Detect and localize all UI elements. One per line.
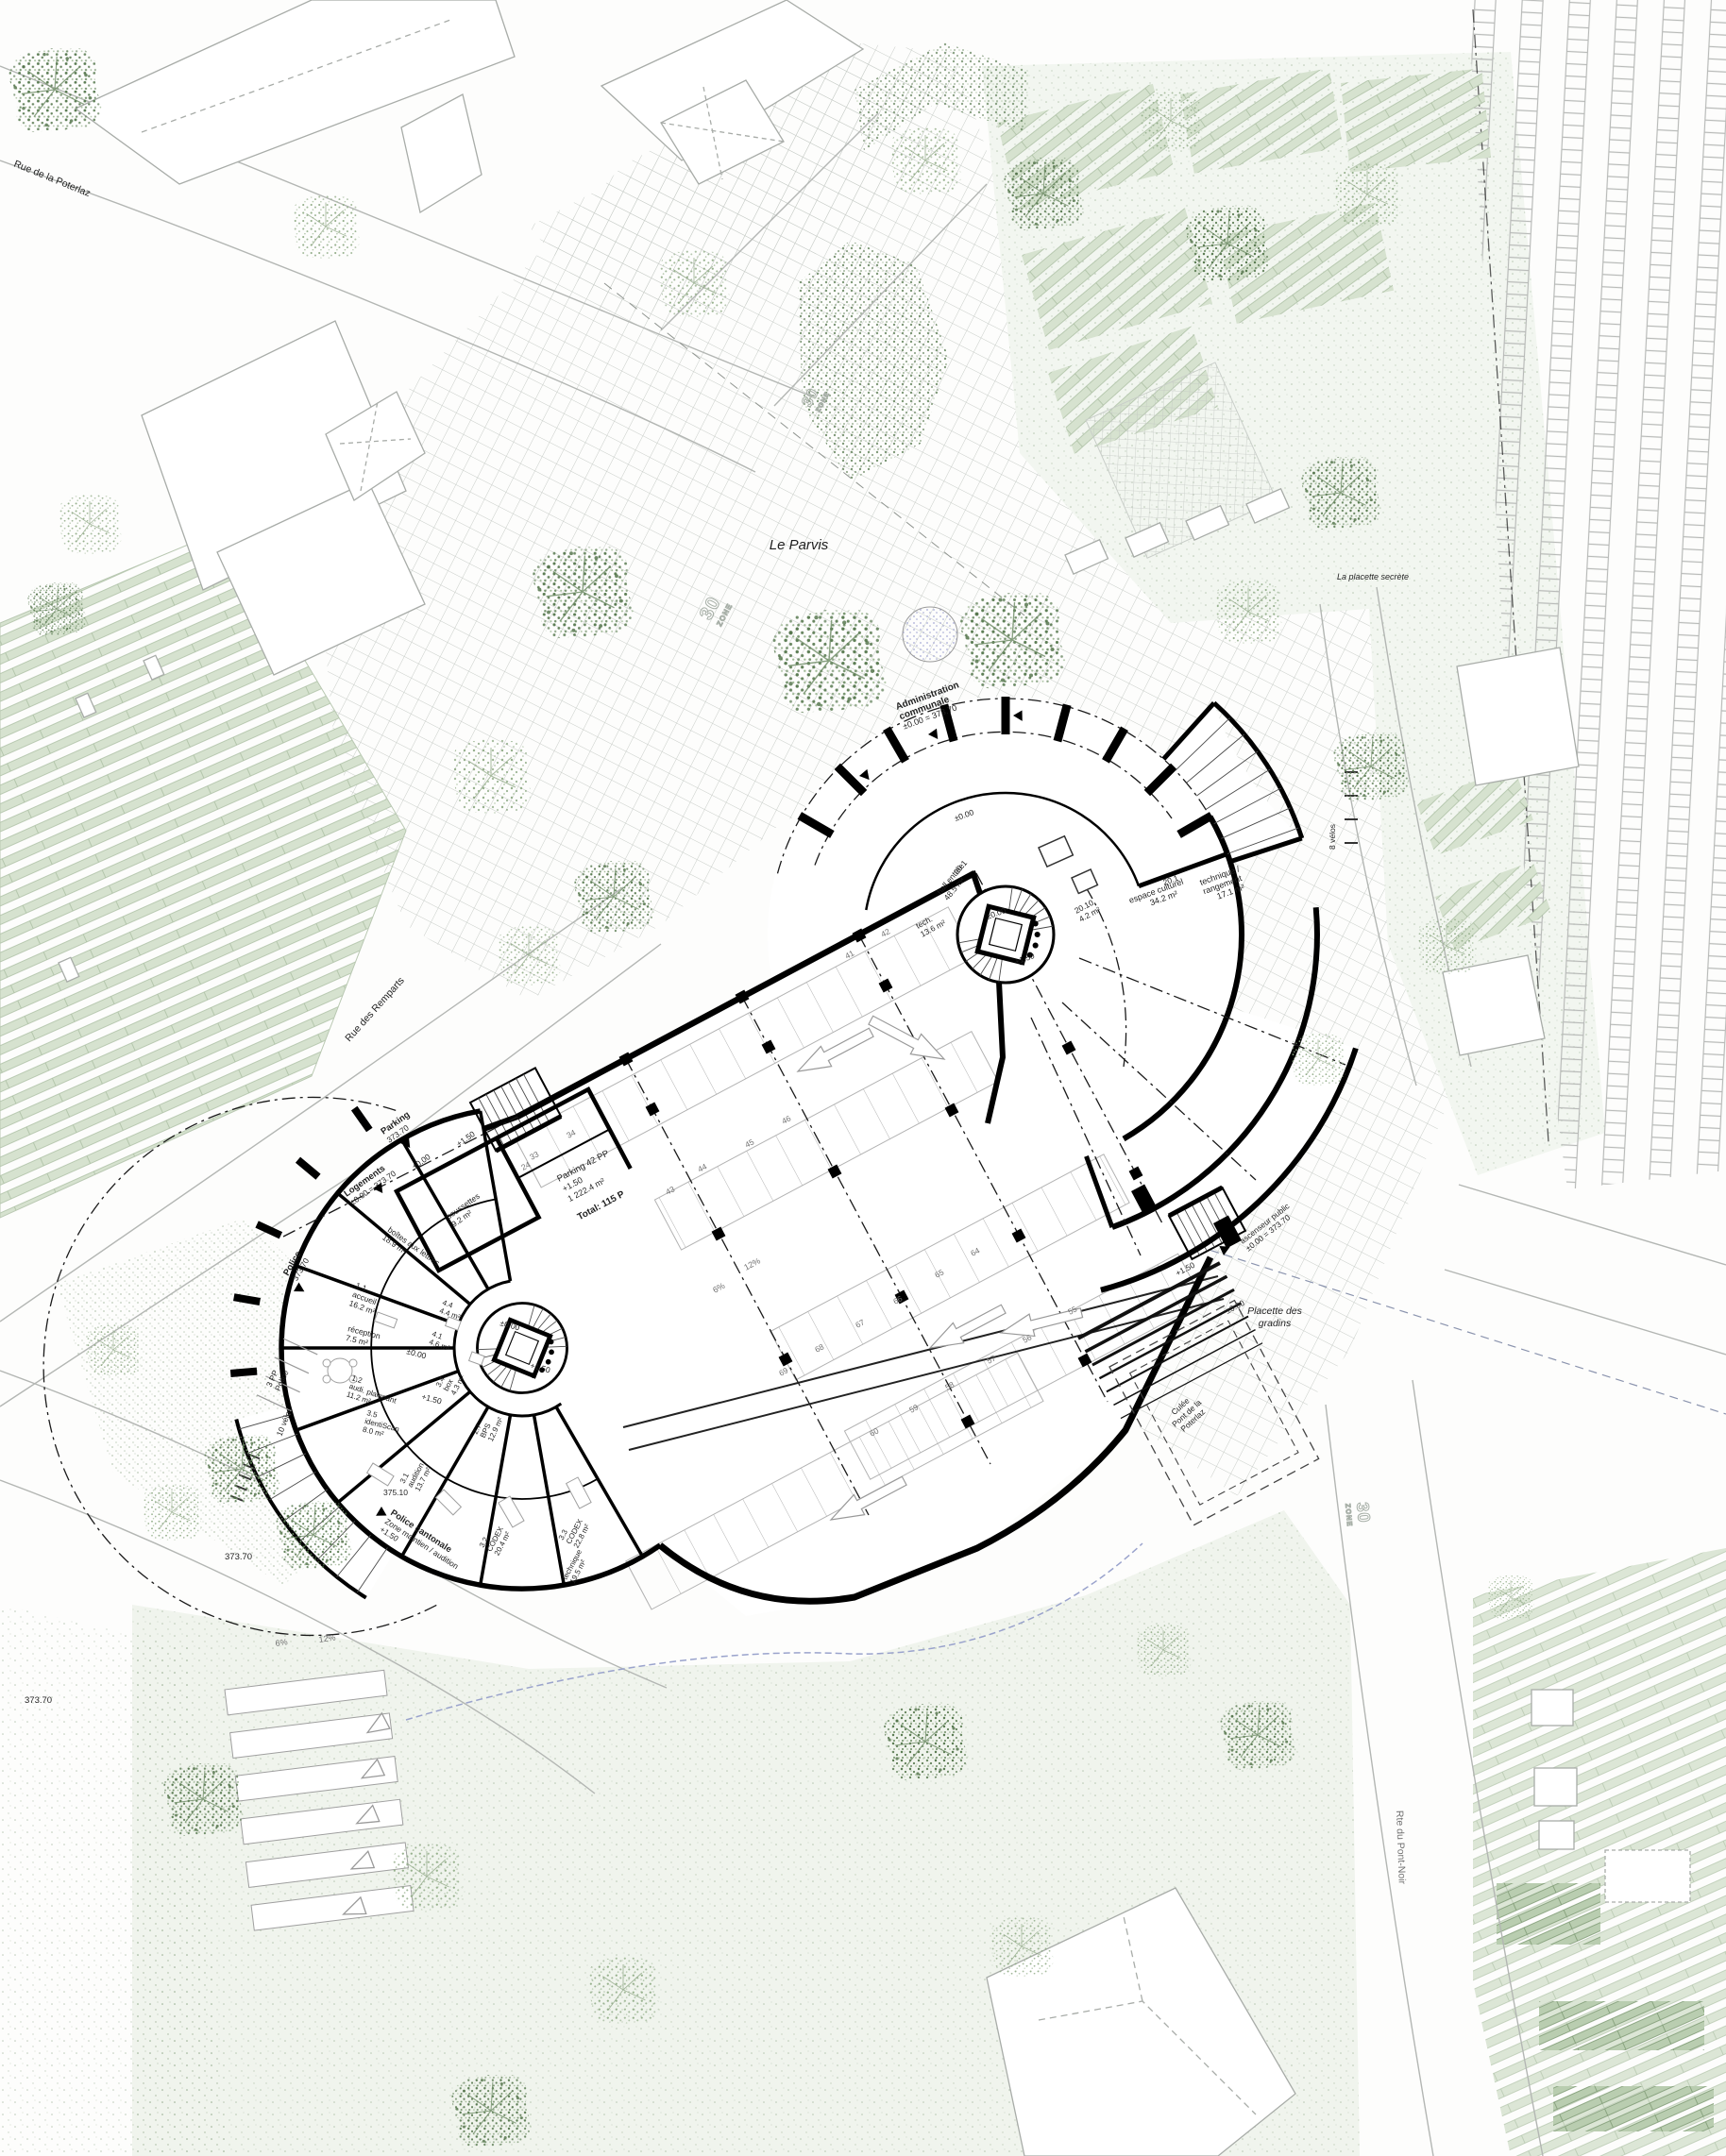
- tree: [1136, 1624, 1191, 1676]
- tree: [1333, 733, 1409, 801]
- tree: [9, 48, 102, 132]
- tree: [1186, 206, 1270, 282]
- tree: [960, 593, 1065, 688]
- tree: [1215, 580, 1282, 644]
- tree: [392, 1843, 463, 1911]
- tree: [204, 1435, 279, 1504]
- tree: [773, 610, 887, 713]
- zone30-num: 30: [1353, 1502, 1374, 1524]
- tree: [1004, 158, 1084, 230]
- place-label-placette-secrete: La placette secrète: [1337, 572, 1409, 581]
- site-plan: Rue de la Poterlaz Rue des Remparts Rte …: [0, 0, 1726, 2156]
- place-label-gradins2: gradins: [1259, 1318, 1292, 1329]
- elevation-37510: 375.10: [383, 1488, 408, 1497]
- slope-6-road: 6%: [275, 1637, 288, 1648]
- tree: [293, 194, 360, 259]
- tree: [86, 1323, 141, 1376]
- fountain: [903, 607, 957, 662]
- tree: [574, 861, 654, 934]
- tree: [890, 126, 961, 194]
- tree: [1220, 1701, 1295, 1770]
- tree: [659, 249, 730, 317]
- tree: [276, 1501, 351, 1570]
- tree: [59, 494, 121, 554]
- tree: [143, 1484, 201, 1541]
- tree: [1301, 457, 1381, 530]
- elevation-37370-a: 373.70: [225, 1552, 252, 1562]
- tree: [1487, 1575, 1534, 1620]
- tree: [27, 582, 86, 636]
- tree: [588, 1956, 659, 2024]
- admin-stair-core: [957, 886, 1054, 983]
- tree: [1334, 162, 1401, 227]
- place-label-gradins1: Placette des: [1247, 1305, 1303, 1317]
- tree: [163, 1763, 244, 1836]
- elevation-37370-b: 373.70: [25, 1695, 52, 1706]
- tree: [533, 547, 634, 638]
- tree: [452, 738, 531, 814]
- velos8-label: 8 vélos: [1328, 824, 1337, 850]
- building-e1: [1457, 648, 1579, 785]
- tree: [1140, 91, 1202, 151]
- place-label-parvis: Le Parvis: [770, 537, 829, 553]
- tree: [1291, 1033, 1345, 1086]
- tree: [1417, 918, 1476, 974]
- tree: [451, 2075, 532, 2148]
- tree: [884, 1704, 968, 1780]
- tree: [498, 925, 560, 985]
- tree: [990, 1916, 1053, 1977]
